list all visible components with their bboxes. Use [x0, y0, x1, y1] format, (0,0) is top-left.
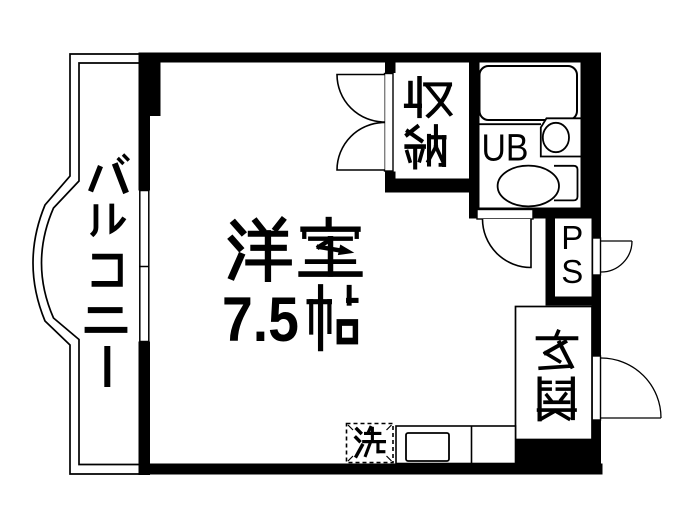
svg-text:7.5: 7.5 [222, 285, 299, 355]
svg-text:P: P [561, 219, 583, 256]
svg-text:UB: UB [482, 127, 529, 169]
svg-text:S: S [561, 253, 583, 290]
